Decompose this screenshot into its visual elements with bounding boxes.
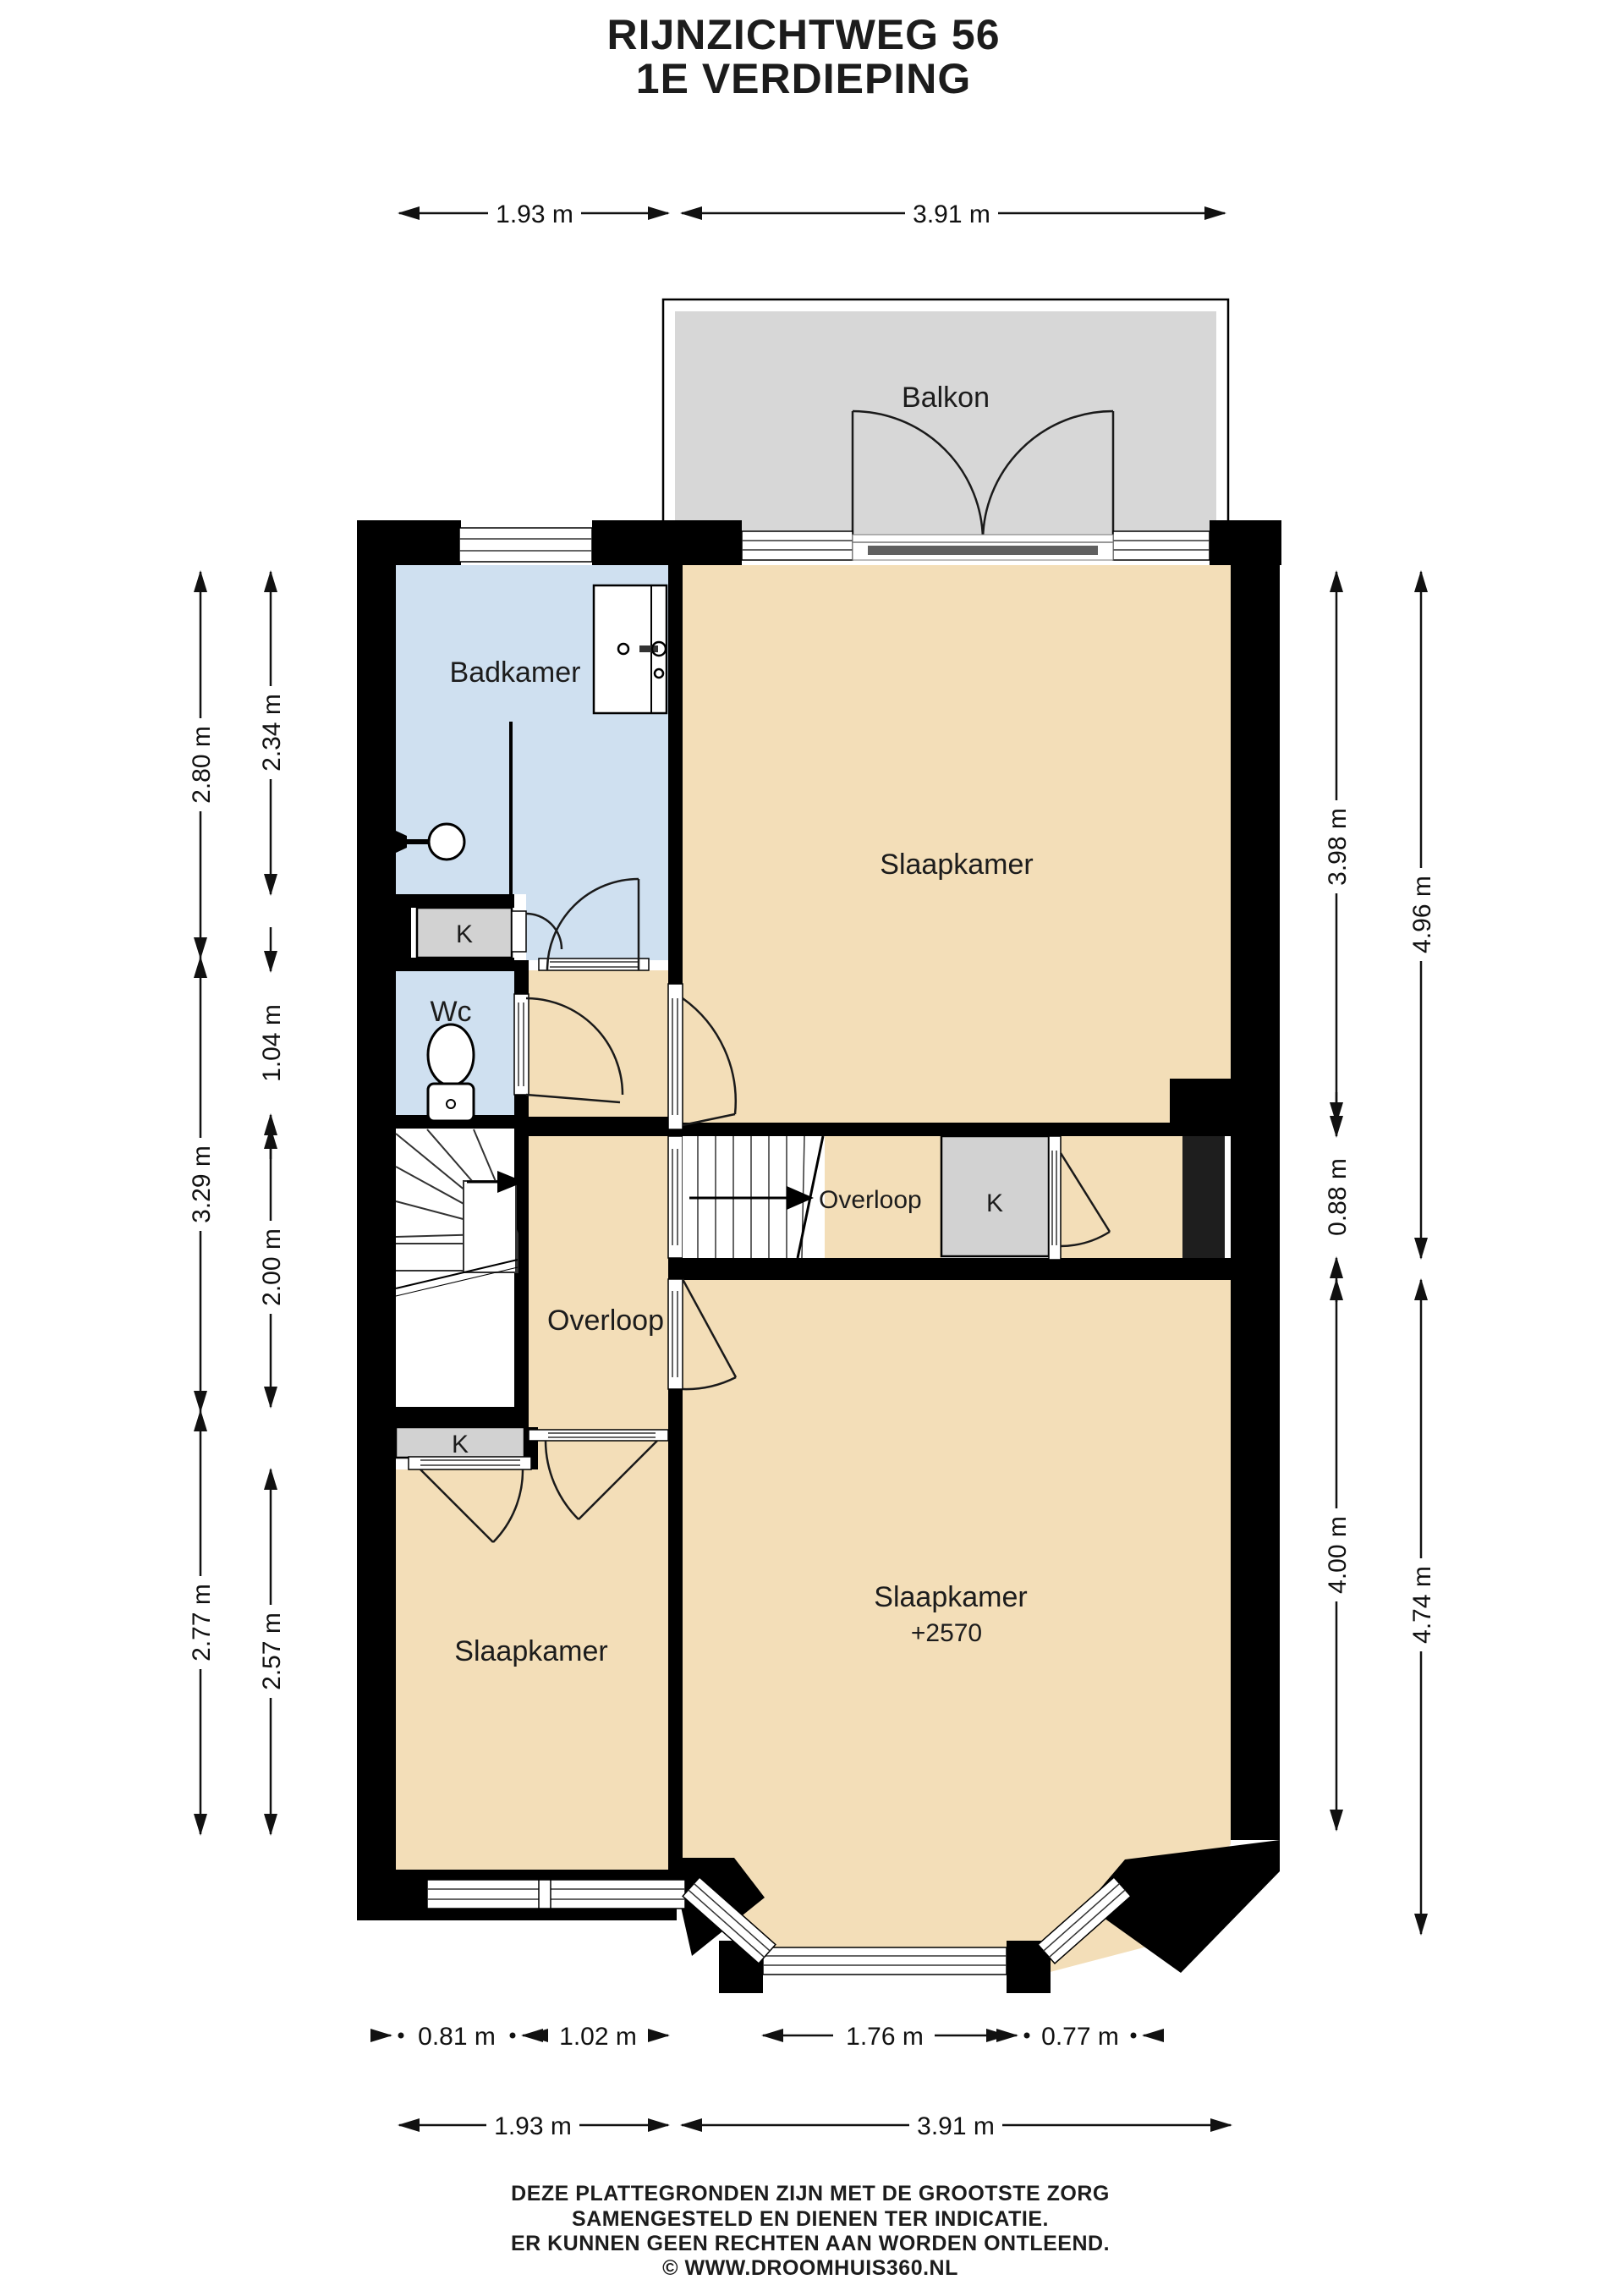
- disclaimer: DEZE PLATTEGRONDEN ZIJN MET DE GROOTSTE …: [511, 2182, 1110, 2280]
- dim-left-outer-2: 3.29 m: [188, 1145, 216, 1223]
- dim-bottom-total-2: 3.91 m: [917, 2112, 995, 2140]
- footer-line4: © WWW.DROOMHUIS360.NL: [662, 2256, 958, 2280]
- dim-right-inner-3: 4.00 m: [1324, 1516, 1352, 1594]
- label-k2: K: [452, 1431, 469, 1458]
- dim-left-outer-1: 2.80 m: [188, 726, 216, 804]
- label-slaapkamer-left: Slaapkamer: [454, 1635, 607, 1667]
- dim-bottom-win-4: 0.77 m: [1041, 2023, 1119, 2051]
- dim-left-inner-1: 2.34 m: [258, 694, 286, 772]
- floorplan-drawing: RIJNZICHTWEG 56 1E VERDIEPING: [0, 0, 1624, 2296]
- dim-bottom-win-2: 1.02 m: [559, 2023, 637, 2051]
- label-slaapkamer-top: Slaapkamer: [880, 849, 1033, 881]
- label-k1: K: [456, 920, 473, 948]
- dim-top-2: 3.91 m: [913, 200, 990, 228]
- dim-bottom-win-3: 1.76 m: [846, 2023, 924, 2051]
- label-balkon: Balkon: [902, 382, 990, 414]
- dim-top-1: 1.93 m: [496, 200, 573, 228]
- balcony: [663, 299, 1228, 545]
- toilet-symbol: [428, 1024, 474, 1121]
- door-leaf-symbol: [594, 585, 667, 713]
- staircase-small: [683, 1136, 823, 1258]
- dim-right-outer-1: 4.96 m: [1408, 876, 1436, 953]
- label-overloop-small: Overloop: [819, 1186, 922, 1214]
- footer-line2: SAMENGESTELD EN DIENEN TER INDICATIE.: [572, 2207, 1049, 2231]
- floorplan-page: RIJNZICHTWEG 56 1E VERDIEPING: [0, 0, 1624, 2296]
- dim-left-outer-3: 2.77 m: [188, 1584, 216, 1662]
- label-slaapkamer-right-level: +2570: [911, 1619, 982, 1647]
- dim-bottom-win-1: 0.81 m: [418, 2023, 496, 2051]
- label-slaapkamer-right: Slaapkamer: [874, 1581, 1027, 1613]
- dim-left-inner-2: 1.04 m: [258, 1004, 286, 1082]
- dim-right-inner-2: 0.88 m: [1324, 1158, 1352, 1236]
- label-overloop: Overloop: [547, 1305, 664, 1337]
- title-line2: 1E VERDIEPING: [636, 55, 971, 102]
- dim-right-inner-1: 3.98 m: [1324, 808, 1352, 886]
- footer-line3: ER KUNNEN GEEN RECHTEN AAN WORDEN ONTLEE…: [511, 2232, 1110, 2255]
- dim-right-outer-2: 4.74 m: [1408, 1566, 1436, 1644]
- label-badkamer: Badkamer: [450, 656, 581, 689]
- label-wc: Wc: [430, 996, 471, 1028]
- dim-bottom-total-1: 1.93 m: [494, 2112, 572, 2140]
- label-k3: K: [986, 1189, 1003, 1217]
- dim-left-inner-3: 2.00 m: [258, 1228, 286, 1306]
- dim-left-inner-4: 2.57 m: [258, 1612, 286, 1690]
- plan-title: RIJNZICHTWEG 56 1E VERDIEPING: [606, 11, 1000, 102]
- footer-line1: DEZE PLATTEGRONDEN ZIJN MET DE GROOTSTE …: [511, 2182, 1110, 2205]
- title-line1: RIJNZICHTWEG 56: [606, 11, 1000, 58]
- staircase-main: [396, 1129, 524, 1296]
